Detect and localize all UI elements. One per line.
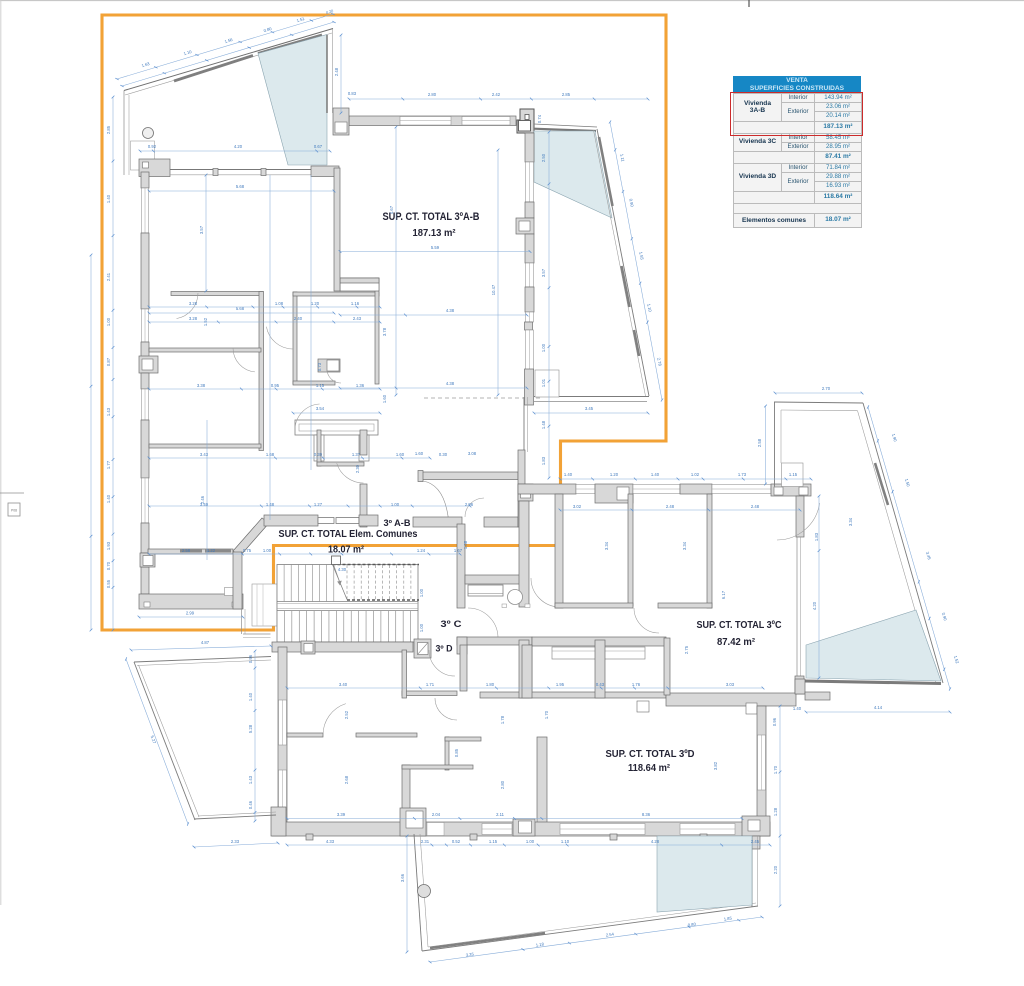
svg-text:2.70: 2.70 <box>822 386 831 391</box>
svg-text:3.08: 3.08 <box>468 451 477 456</box>
svg-text:1.40: 1.40 <box>793 706 802 711</box>
svg-text:2.42: 2.42 <box>492 92 501 97</box>
svg-text:2.31: 2.31 <box>421 839 430 844</box>
svg-text:3.34: 3.34 <box>848 517 853 526</box>
svg-text:0.92: 0.92 <box>148 144 157 149</box>
svg-text:5.27: 5.27 <box>150 735 158 745</box>
svg-text:4.20: 4.20 <box>234 144 243 149</box>
svg-text:0.85: 0.85 <box>454 748 459 757</box>
svg-text:1.76: 1.76 <box>632 682 641 687</box>
svg-text:3.54: 3.54 <box>316 406 325 411</box>
svg-text:2.48: 2.48 <box>666 504 675 509</box>
svg-text:1.11: 1.11 <box>619 153 626 162</box>
svg-text:1.24: 1.24 <box>417 548 426 553</box>
svg-text:2.78: 2.78 <box>656 357 663 367</box>
svg-text:0.67: 0.67 <box>314 144 323 149</box>
svg-text:2.68: 2.68 <box>344 775 349 784</box>
svg-text:1.10: 1.10 <box>646 303 653 313</box>
svg-text:1.56: 1.56 <box>224 37 234 44</box>
svg-text:0.73: 0.73 <box>317 362 322 371</box>
svg-text:4.87: 4.87 <box>201 640 210 645</box>
svg-text:2.58: 2.58 <box>182 548 191 553</box>
svg-text:2.11: 2.11 <box>496 812 505 817</box>
svg-text:2.54: 2.54 <box>605 931 614 937</box>
svg-text:5.59: 5.59 <box>431 245 440 250</box>
svg-text:0.43: 0.43 <box>596 682 605 687</box>
svg-text:3.45: 3.45 <box>925 551 932 561</box>
svg-text:2.75: 2.75 <box>684 645 689 654</box>
svg-text:2.52: 2.52 <box>344 710 349 719</box>
svg-text:2.50: 2.50 <box>541 153 546 162</box>
svg-text:4.38: 4.38 <box>446 308 455 313</box>
svg-text:3.39: 3.39 <box>337 812 346 817</box>
svg-text:1.43: 1.43 <box>106 407 111 416</box>
svg-text:P08: P08 <box>11 509 17 513</box>
svg-text:1.60: 1.60 <box>396 452 405 457</box>
svg-text:3.45: 3.45 <box>585 406 594 411</box>
svg-text:1.00: 1.00 <box>526 839 535 844</box>
svg-text:0.46: 0.46 <box>248 800 253 809</box>
svg-text:4.30: 4.30 <box>338 567 347 572</box>
svg-text:1.20: 1.20 <box>311 301 320 306</box>
svg-text:1.50: 1.50 <box>904 478 911 488</box>
svg-text:0.52: 0.52 <box>452 839 461 844</box>
svg-text:6.17: 6.17 <box>721 590 726 599</box>
svg-text:3.40: 3.40 <box>339 682 348 687</box>
svg-text:1.37: 1.37 <box>352 452 361 457</box>
svg-text:3.57: 3.57 <box>541 268 546 277</box>
svg-text:8.36: 8.36 <box>642 812 651 817</box>
svg-text:2.30: 2.30 <box>355 464 360 473</box>
svg-text:3º D: 3º D <box>436 644 453 654</box>
svg-text:2.46: 2.46 <box>200 495 205 504</box>
svg-text:0.96: 0.96 <box>772 717 777 726</box>
svg-text:2.43: 2.43 <box>353 316 362 321</box>
svg-text:1.16: 1.16 <box>351 301 360 306</box>
svg-text:4.28: 4.28 <box>651 839 660 844</box>
svg-text:0.83: 0.83 <box>348 91 357 96</box>
svg-text:1.80: 1.80 <box>486 682 495 687</box>
svg-text:1.77: 1.77 <box>106 460 111 469</box>
svg-text:3º C: 3º C <box>441 619 462 630</box>
svg-text:2.48: 2.48 <box>334 67 339 76</box>
svg-text:1.60: 1.60 <box>415 451 424 456</box>
svg-text:0.30: 0.30 <box>314 452 323 457</box>
svg-text:2.20: 2.20 <box>773 865 778 874</box>
svg-text:1.48: 1.48 <box>541 420 546 429</box>
svg-text:1.08: 1.08 <box>275 301 284 306</box>
svg-text:1.15: 1.15 <box>789 472 798 477</box>
svg-text:4.38: 4.38 <box>446 381 455 386</box>
svg-text:SUP. CT. TOTAL 3ºC: SUP. CT. TOTAL 3ºC <box>697 619 782 631</box>
svg-text:1.48: 1.48 <box>266 502 275 507</box>
svg-text:2.41: 2.41 <box>106 272 111 281</box>
svg-text:4.33: 4.33 <box>326 839 335 844</box>
svg-text:0.90: 0.90 <box>941 612 948 622</box>
svg-text:2.48: 2.48 <box>751 504 760 509</box>
svg-text:1.15: 1.15 <box>316 383 325 388</box>
svg-text:0.96: 0.96 <box>248 654 253 663</box>
svg-text:4.67: 4.67 <box>389 205 394 214</box>
svg-text:1.10: 1.10 <box>561 839 570 844</box>
svg-text:3.66: 3.66 <box>400 873 405 882</box>
svg-text:4.14: 4.14 <box>874 705 883 710</box>
svg-text:1.78: 1.78 <box>500 715 505 724</box>
svg-text:2.04: 2.04 <box>432 812 441 817</box>
svg-text:0.95: 0.95 <box>271 383 280 388</box>
svg-text:1.15: 1.15 <box>489 839 498 844</box>
svg-text:1.83: 1.83 <box>814 532 819 541</box>
svg-text:2.85: 2.85 <box>562 92 571 97</box>
svg-text:2.45: 2.45 <box>751 839 760 844</box>
svg-text:1.60: 1.60 <box>382 394 387 403</box>
svg-text:3.28: 3.28 <box>189 301 198 306</box>
svg-text:1.10: 1.10 <box>183 49 193 56</box>
svg-text:2.40: 2.40 <box>294 316 303 321</box>
svg-text:2.85: 2.85 <box>106 125 111 134</box>
svg-text:SUP. CT. TOTAL 3ºD: SUP. CT. TOTAL 3ºD <box>606 748 695 760</box>
svg-text:1.40: 1.40 <box>651 472 660 477</box>
svg-text:5.68: 5.68 <box>236 184 245 189</box>
svg-text:1.00: 1.00 <box>541 343 546 352</box>
svg-text:1.28: 1.28 <box>773 807 778 816</box>
svg-text:3.43: 3.43 <box>200 452 209 457</box>
svg-text:SUP. CT. TOTAL Elem. Comunes: SUP. CT. TOTAL Elem. Comunes <box>279 528 418 540</box>
svg-text:1.27: 1.27 <box>314 502 323 507</box>
svg-text:SUP. CT. TOTAL 3ºA-B: SUP. CT. TOTAL 3ºA-B <box>383 211 480 223</box>
svg-text:0.80: 0.80 <box>263 26 273 33</box>
svg-text:1.00: 1.00 <box>419 588 424 597</box>
svg-text:3º A-B: 3º A-B <box>384 518 411 528</box>
svg-text:87.42 m²: 87.42 m² <box>717 637 756 648</box>
svg-text:3.78: 3.78 <box>382 327 387 336</box>
svg-text:3.34: 3.34 <box>604 541 609 550</box>
svg-text:3.02: 3.02 <box>573 504 582 509</box>
svg-text:0.90: 0.90 <box>628 198 635 208</box>
svg-text:4.20: 4.20 <box>812 601 817 610</box>
svg-text:1.85: 1.85 <box>723 915 732 921</box>
svg-text:0.80: 0.80 <box>687 921 696 927</box>
svg-text:0.55: 0.55 <box>106 579 111 588</box>
svg-text:2.96: 2.96 <box>465 502 474 507</box>
svg-text:3.82: 3.82 <box>713 761 718 770</box>
svg-text:1.40: 1.40 <box>248 692 253 701</box>
svg-text:1.73: 1.73 <box>738 472 747 477</box>
svg-text:0.30: 0.30 <box>439 452 448 457</box>
svg-text:1.36: 1.36 <box>356 383 365 388</box>
svg-text:1.70: 1.70 <box>544 710 549 719</box>
svg-text:1.52: 1.52 <box>203 317 208 326</box>
svg-text:2.58: 2.58 <box>757 438 762 447</box>
svg-text:1.40: 1.40 <box>106 194 111 203</box>
svg-text:3.57: 3.57 <box>199 225 204 234</box>
svg-text:1.43: 1.43 <box>248 775 253 784</box>
svg-text:1.00: 1.00 <box>391 502 400 507</box>
svg-text:1.63: 1.63 <box>141 61 151 68</box>
svg-text:1.40: 1.40 <box>106 494 111 503</box>
svg-text:1.40: 1.40 <box>564 472 573 477</box>
svg-text:10.47: 10.47 <box>491 284 496 295</box>
svg-text:0.70: 0.70 <box>106 561 111 570</box>
svg-text:1.01: 1.01 <box>541 378 546 387</box>
svg-text:0.75: 0.75 <box>243 548 252 553</box>
svg-text:187.13 m²: 187.13 m² <box>413 227 456 239</box>
svg-text:1.08: 1.08 <box>463 540 468 549</box>
svg-text:1.83: 1.83 <box>541 456 546 465</box>
svg-text:2.80: 2.80 <box>428 92 437 97</box>
svg-text:1.20: 1.20 <box>610 472 619 477</box>
svg-text:1.00: 1.00 <box>263 548 272 553</box>
svg-text:0.74: 0.74 <box>537 114 542 123</box>
svg-text:1.22: 1.22 <box>207 548 216 553</box>
svg-text:1.00: 1.00 <box>106 317 111 326</box>
svg-text:2.99: 2.99 <box>186 611 195 616</box>
svg-text:1.52: 1.52 <box>953 655 960 665</box>
svg-text:1.67: 1.67 <box>454 548 463 553</box>
svg-text:1.90: 1.90 <box>891 433 898 443</box>
svg-text:1.95: 1.95 <box>556 682 565 687</box>
svg-text:3.34: 3.34 <box>682 541 687 550</box>
svg-text:1.71: 1.71 <box>426 682 435 687</box>
svg-text:118.64 m²: 118.64 m² <box>628 763 671 774</box>
svg-text:2.33: 2.33 <box>231 839 240 844</box>
svg-text:0.87: 0.87 <box>106 357 111 366</box>
svg-text:3.35: 3.35 <box>465 951 474 957</box>
svg-text:5.28: 5.28 <box>248 724 253 733</box>
svg-text:1.00: 1.00 <box>419 623 424 632</box>
svg-text:1.93: 1.93 <box>106 541 111 550</box>
svg-text:3.38: 3.38 <box>197 383 206 388</box>
svg-text:1.51: 1.51 <box>296 16 306 23</box>
svg-text:1.55: 1.55 <box>638 251 645 261</box>
svg-text:3.28: 3.28 <box>189 316 198 321</box>
svg-text:1.68: 1.68 <box>266 452 275 457</box>
svg-text:2.80: 2.80 <box>500 780 505 789</box>
svg-text:1.70: 1.70 <box>773 765 778 774</box>
svg-text:3.03: 3.03 <box>726 682 735 687</box>
svg-text:1.02: 1.02 <box>691 472 700 477</box>
